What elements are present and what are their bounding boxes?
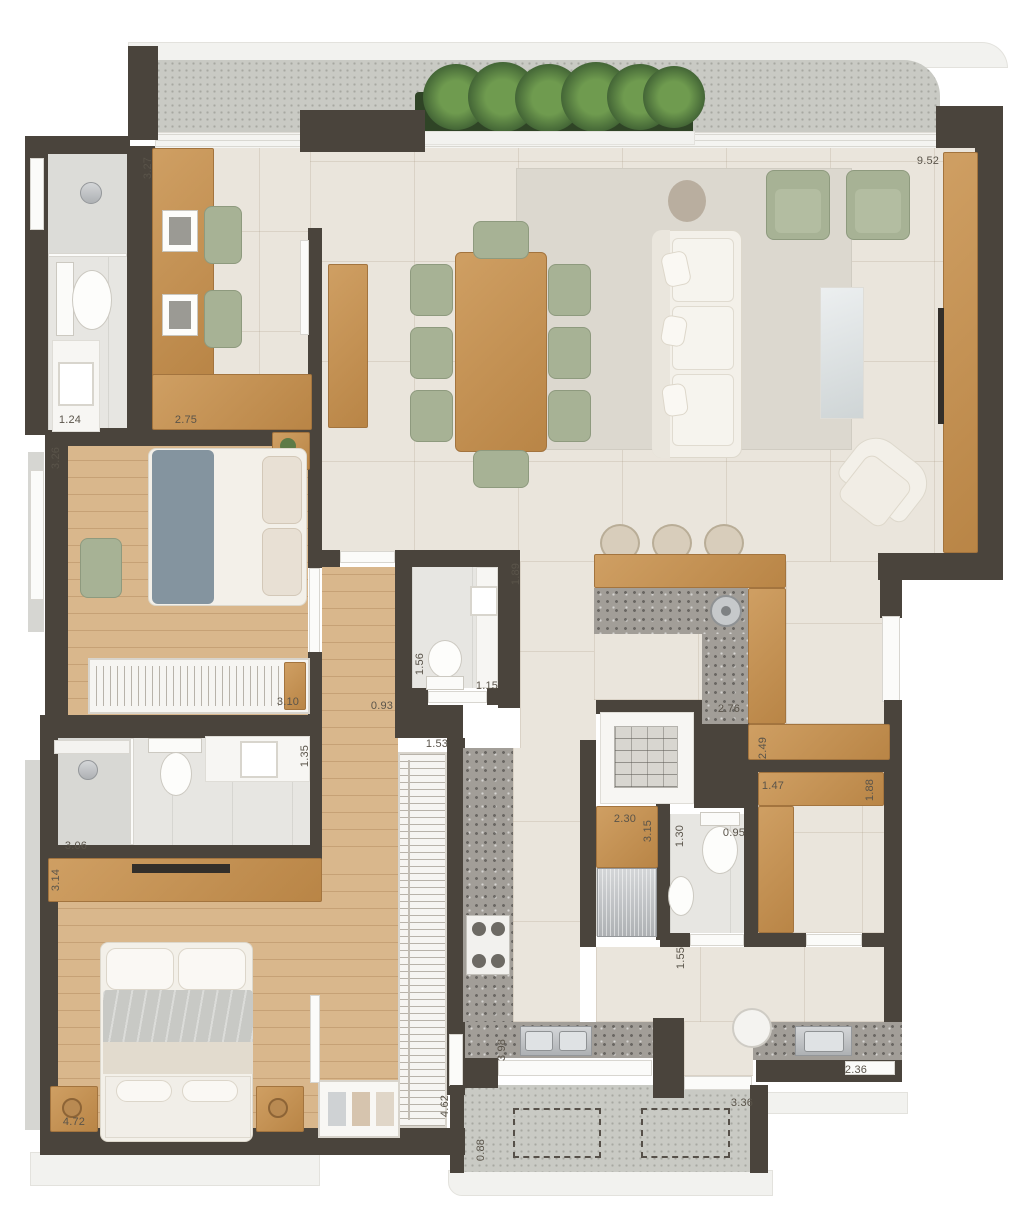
dimension-label: 1.15 [476, 680, 498, 692]
dimension-label: 4.72 [63, 1116, 85, 1128]
dimension-label: 1.56 [414, 653, 426, 675]
dimension-label: 0.95 [723, 827, 745, 839]
dimension-label: 0.93 [371, 700, 393, 712]
dimension-label: 0.88 [475, 1139, 487, 1161]
dimension-label: 1.35 [299, 745, 311, 767]
dimension-label: 3.10 [277, 696, 299, 708]
dimension-label: 2.75 [175, 414, 197, 426]
dimension-label: 2.76 [718, 703, 740, 715]
dimension-label: 9.52 [917, 155, 939, 167]
dimension-label: 1.30 [674, 825, 686, 847]
dimension-label: 2.30 [614, 813, 636, 825]
dimension-label: 2.49 [757, 737, 769, 759]
dimension-label: 4.62 [439, 1095, 451, 1117]
dimension-labels-layer: 3.279.521.242.753.263.100.931.891.561.15… [0, 0, 1024, 1205]
dimension-label: 1.53 [426, 738, 448, 750]
dimension-label: 3.27 [142, 157, 154, 179]
dimension-label: 1.55 [675, 947, 687, 969]
dimension-label: 1.88 [864, 779, 876, 801]
dimension-label: 1.89 [510, 563, 522, 585]
dimension-label: 1.24 [59, 414, 81, 426]
dimension-label: 3.06 [65, 840, 87, 852]
dimension-label: 1.47 [762, 780, 784, 792]
dimension-label: 2.36 [845, 1064, 867, 1076]
dimension-label: 3.26 [50, 447, 62, 469]
floor-plan: 3.279.521.242.753.263.100.931.891.561.15… [0, 0, 1024, 1205]
dimension-label: 3.15 [642, 820, 654, 842]
dimension-label: 3.98 [496, 1039, 508, 1061]
dimension-label: 3.36 [731, 1097, 753, 1109]
dimension-label: 3.14 [50, 869, 62, 891]
